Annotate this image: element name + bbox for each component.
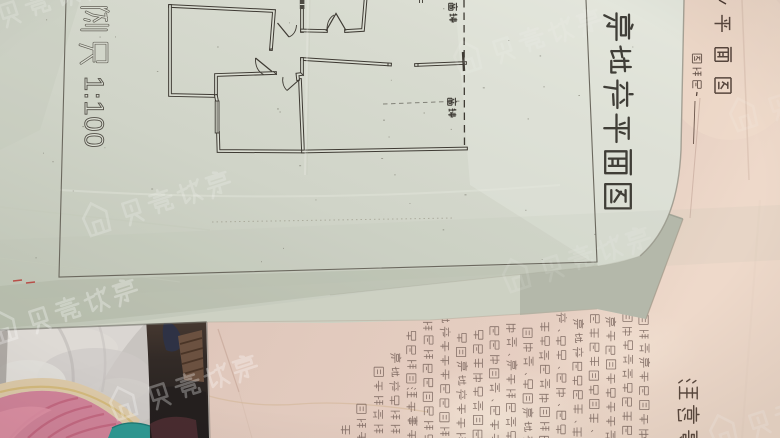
- svg-text:1:100: 1:100: [79, 76, 109, 149]
